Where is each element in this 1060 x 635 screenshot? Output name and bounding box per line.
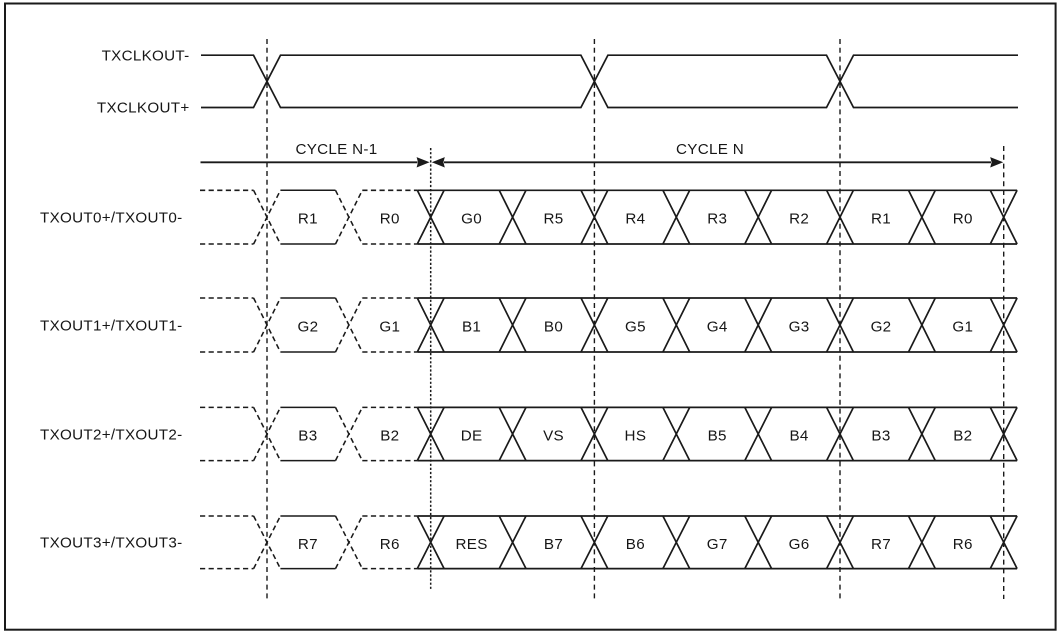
- svg-text:CYCLE N: CYCLE N: [676, 141, 744, 158]
- svg-text:RES: RES: [456, 536, 488, 553]
- svg-text:B0: B0: [544, 319, 563, 336]
- svg-text:TXOUT2+/TXOUT2-: TXOUT2+/TXOUT2-: [40, 426, 182, 443]
- svg-text:B7: B7: [544, 536, 563, 553]
- svg-text:G2: G2: [297, 319, 318, 336]
- svg-text:TXOUT3+/TXOUT3-: TXOUT3+/TXOUT3-: [40, 535, 182, 552]
- svg-text:DE: DE: [461, 428, 483, 445]
- svg-text:G7: G7: [707, 536, 728, 553]
- svg-text:R1: R1: [871, 211, 891, 228]
- svg-text:G0: G0: [461, 211, 482, 228]
- svg-text:B6: B6: [626, 536, 645, 553]
- svg-text:R0: R0: [953, 211, 973, 228]
- svg-text:B2: B2: [380, 428, 399, 445]
- svg-text:R2: R2: [789, 211, 809, 228]
- svg-text:R7: R7: [298, 536, 318, 553]
- svg-text:TXCLKOUT+: TXCLKOUT+: [97, 100, 190, 117]
- svg-text:TXOUT1+/TXOUT1-: TXOUT1+/TXOUT1-: [40, 317, 182, 334]
- svg-text:B3: B3: [298, 428, 317, 445]
- svg-text:G1: G1: [952, 319, 973, 336]
- svg-text:G1: G1: [379, 319, 400, 336]
- svg-text:R6: R6: [380, 536, 400, 553]
- svg-text:G3: G3: [789, 319, 810, 336]
- svg-text:R7: R7: [871, 536, 891, 553]
- svg-text:B5: B5: [708, 428, 727, 445]
- svg-text:G5: G5: [625, 319, 646, 336]
- svg-text:R0: R0: [380, 211, 400, 228]
- svg-text:TXOUT0+/TXOUT0-: TXOUT0+/TXOUT0-: [40, 210, 182, 227]
- svg-text:B1: B1: [462, 319, 481, 336]
- svg-text:R6: R6: [953, 536, 973, 553]
- svg-text:R3: R3: [707, 211, 727, 228]
- svg-text:R5: R5: [543, 211, 563, 228]
- svg-text:B3: B3: [871, 428, 890, 445]
- svg-text:VS: VS: [543, 428, 564, 445]
- svg-text:B2: B2: [953, 428, 972, 445]
- svg-text:G2: G2: [871, 319, 892, 336]
- svg-text:R4: R4: [625, 211, 645, 228]
- svg-text:G6: G6: [789, 536, 810, 553]
- svg-text:HS: HS: [625, 428, 647, 445]
- svg-text:TXCLKOUT-: TXCLKOUT-: [102, 47, 190, 64]
- svg-text:R1: R1: [298, 211, 318, 228]
- svg-text:CYCLE N-1: CYCLE N-1: [295, 141, 377, 158]
- svg-text:B4: B4: [790, 428, 809, 445]
- svg-text:G4: G4: [707, 319, 728, 336]
